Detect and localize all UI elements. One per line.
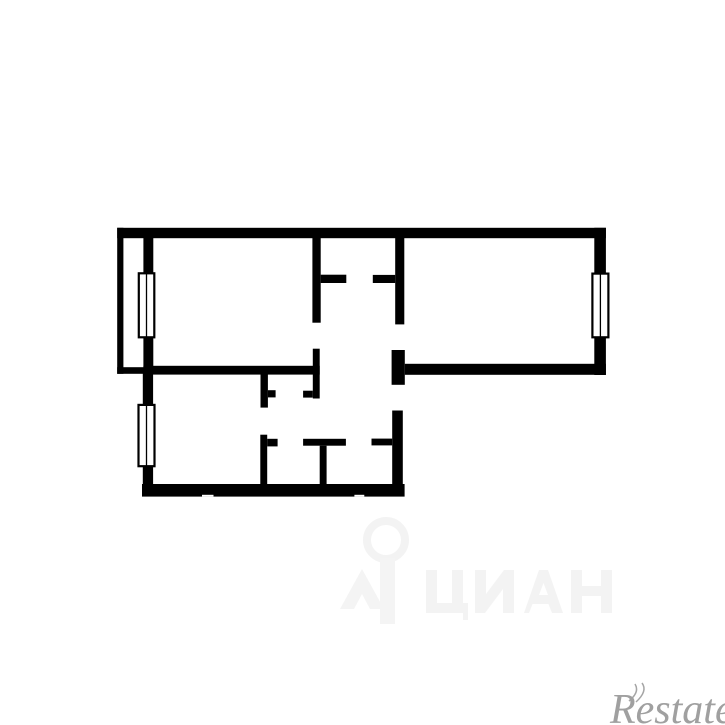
svg-text:Restate: Restate: [609, 687, 725, 725]
